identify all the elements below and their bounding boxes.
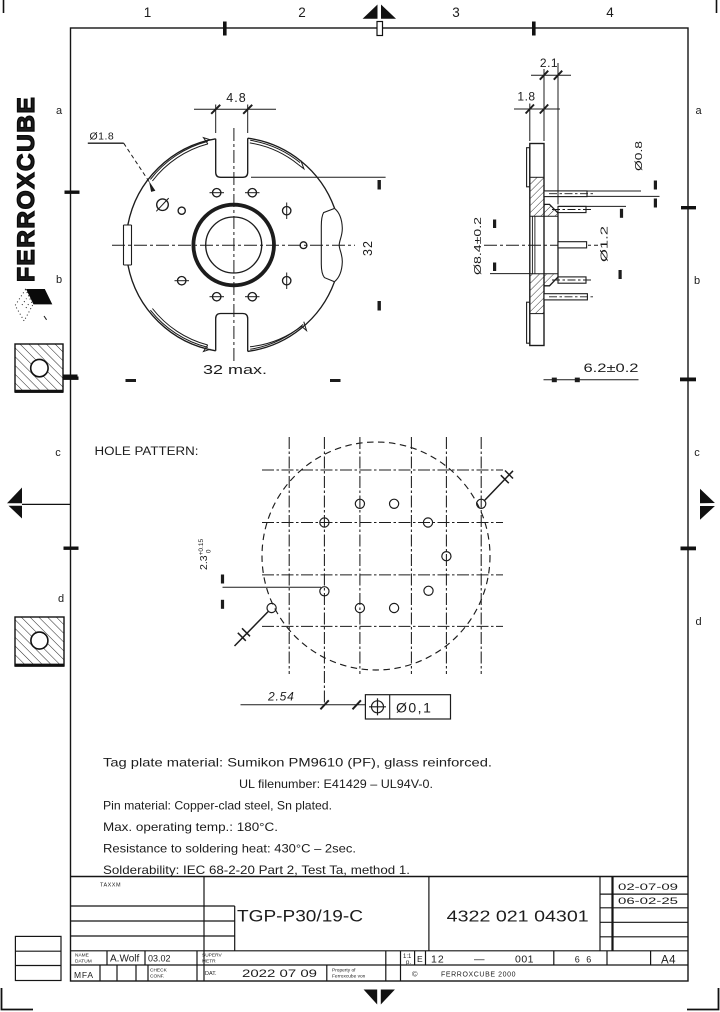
svg-text:32: 32 [361,240,375,256]
svg-text:b: b [694,275,700,287]
svg-text:02-07-09: 02-07-09 [618,882,678,893]
svg-text:METR: METR [202,959,216,965]
svg-text:2.54: 2.54 [267,690,295,704]
svg-text:a: a [56,105,63,117]
svg-text:4.8: 4.8 [226,91,246,105]
svg-text:2.3+0.15 0: 2.3+0.15 0 [198,539,213,570]
svg-text:FERROXCUBE: FERROXCUBE [13,98,40,282]
svg-text:Ø0,1: Ø0,1 [396,700,432,716]
svg-text:Tag plate material: Sumikon PM: Tag plate material: Sumikon PM9610 (PF),… [103,756,492,770]
svg-text:MFA: MFA [74,970,94,980]
svg-text:Ø8.4±0.2: Ø8.4±0.2 [473,216,484,275]
svg-text:Max. operating temp.: 180°C.: Max. operating temp.: 180°C. [103,820,278,834]
svg-text:001: 001 [515,954,534,966]
svg-text:1.8: 1.8 [517,90,535,104]
svg-text:TAXXM: TAXXM [100,883,121,889]
svg-text:Ferroxcube von: Ferroxcube von [332,974,366,980]
svg-text:p.: p. [406,960,411,966]
svg-text:A.Wolf: A.Wolf [110,954,139,965]
svg-text:6 6: 6 6 [575,955,594,965]
svg-text:NAME: NAME [75,953,89,959]
svg-text:Resistance to soldering heat:: Resistance to soldering heat: 430°C – 2s… [103,842,356,856]
svg-text:SUPERV: SUPERV [202,953,222,959]
svg-text:b: b [56,274,62,286]
svg-text:DAT.: DAT. [205,971,217,977]
svg-text:FERROXCUBE 2000: FERROXCUBE 2000 [441,972,516,979]
svg-text:E: E [417,954,423,964]
svg-text:d: d [58,593,64,605]
svg-text:A4: A4 [661,955,676,967]
svg-text:d: d [695,616,701,628]
svg-text:Ø1.2: Ø1.2 [600,225,611,262]
svg-text:1: 1 [144,5,152,20]
svg-text:4322 021 04301: 4322 021 04301 [447,909,589,926]
svg-text:HOLE PATTERN:: HOLE PATTERN: [95,446,199,458]
svg-text:Solderability: IEC 68-2-20 Par: Solderability: IEC 68-2-20 Part 2, Test … [103,863,410,877]
svg-text:6.2±0.2: 6.2±0.2 [584,363,639,375]
svg-text:2: 2 [298,5,306,20]
svg-text:©: © [412,970,418,979]
svg-text:4: 4 [606,5,614,20]
svg-text:UL filenumber: E41429 – UL94V-: UL filenumber: E41429 – UL94V-0. [239,777,433,791]
svg-text:a: a [695,105,702,117]
svg-text:32 max.: 32 max. [203,363,267,377]
svg-text:12: 12 [431,954,445,966]
svg-text:3: 3 [452,5,460,20]
svg-text:CONF.: CONF. [150,974,164,980]
svg-text:c: c [55,447,61,459]
svg-text:c: c [694,447,700,459]
svg-text:Ø0.8: Ø0.8 [634,140,645,171]
svg-text:Ø1.8: Ø1.8 [90,131,115,143]
svg-text:2.1: 2.1 [540,56,558,70]
svg-text:Pin material: Copper-clad stee: Pin material: Copper-clad steel, Sn plat… [103,799,332,813]
svg-text:TGP-P30/19-C: TGP-P30/19-C [237,907,363,926]
svg-text:CHECK: CHECK [150,968,168,974]
svg-text:DATUM: DATUM [75,959,92,965]
svg-text:Property of: Property of [332,968,356,974]
svg-text:—: — [474,954,485,966]
svg-text:03.02: 03.02 [148,954,171,964]
svg-text:06-02-25: 06-02-25 [618,896,678,907]
svg-text:2022 07 09: 2022 07 09 [242,968,317,980]
